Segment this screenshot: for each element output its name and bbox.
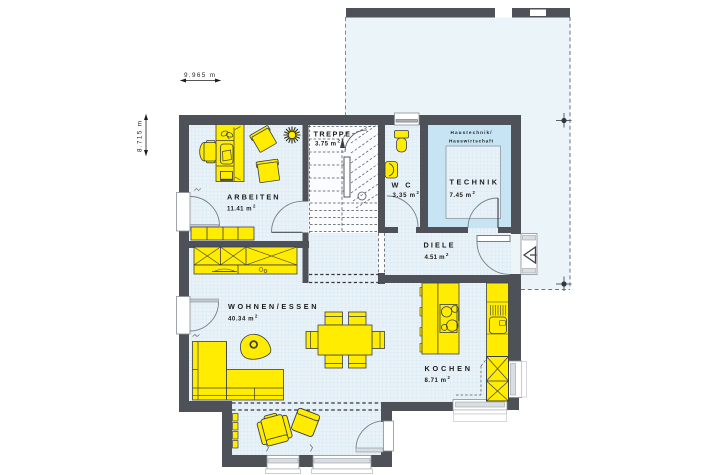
svg-text:Hauswirtschaft: Hauswirtschaft	[449, 139, 493, 144]
svg-text:DIELE: DIELE	[424, 241, 454, 250]
svg-text:Haustechnik/: Haustechnik/	[451, 130, 493, 135]
svg-text:WOHNEN/ESSEN: WOHNEN/ESSEN	[228, 302, 317, 311]
svg-text:9.965 m: 9.965 m	[184, 72, 215, 79]
svg-text:ARBEITEN: ARBEITEN	[227, 193, 279, 202]
svg-text:11.41 m: 11.41 m	[227, 206, 252, 213]
svg-text:3.75 m: 3.75 m	[315, 141, 337, 148]
svg-text:8.715 m: 8.715 m	[137, 121, 144, 152]
svg-text:TREPPE: TREPPE	[314, 130, 351, 139]
svg-text:7.45 m: 7.45 m	[450, 192, 472, 199]
svg-text:4.51 m: 4.51 m	[425, 254, 446, 261]
svg-text:40.34 m: 40.34 m	[228, 316, 254, 323]
svg-text:8.71 m: 8.71 m	[425, 377, 447, 384]
svg-text:3.35 m: 3.35 m	[393, 192, 416, 199]
